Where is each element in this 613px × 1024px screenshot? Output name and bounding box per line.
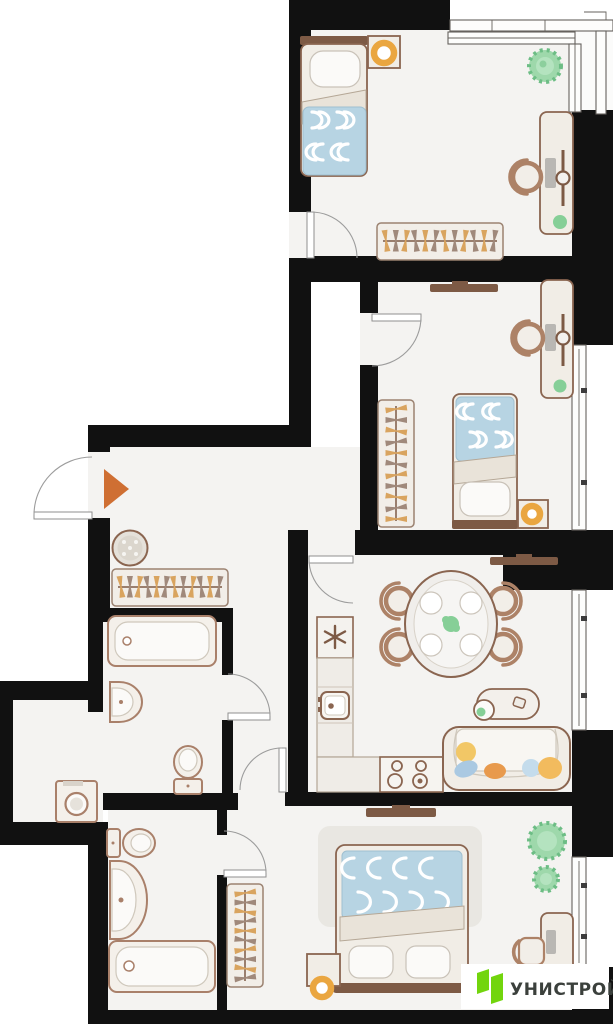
nightstand-lamp (368, 36, 400, 68)
sofa (443, 727, 570, 790)
pouf (113, 531, 148, 566)
coffee-table (474, 689, 539, 720)
plant-icon (529, 823, 565, 859)
logo-text: УНИСТРОЙ (510, 978, 613, 1000)
pillow (406, 946, 450, 978)
pillow (460, 482, 510, 516)
toilet (107, 829, 155, 857)
lamp-icon (374, 43, 394, 63)
wardrobe (378, 400, 414, 527)
toilet (174, 746, 202, 794)
plate (420, 592, 442, 614)
door-entrance (34, 457, 92, 519)
fridge (317, 617, 353, 658)
pillow (310, 51, 360, 87)
desk-chair (512, 321, 543, 355)
lamp-icon (524, 506, 540, 522)
keyboard-icon (545, 158, 556, 188)
plant-icon (529, 50, 561, 82)
desk (540, 112, 573, 234)
nightstand-lamp (518, 500, 548, 528)
balcony-glazing-top (450, 20, 613, 31)
counter-stove (317, 757, 443, 792)
plate (460, 592, 482, 614)
balcony-glazing-right (596, 31, 606, 114)
pillow (456, 742, 476, 762)
pillow (349, 946, 393, 978)
desk-chair (510, 160, 541, 194)
bathtub (109, 941, 215, 992)
floor-plan-canvas: УНИСТРОЙ (0, 0, 613, 1024)
desk-chair (514, 938, 544, 965)
wardrobe (227, 884, 263, 987)
counter-sink (317, 658, 353, 757)
bathtub (108, 616, 216, 666)
floor-plan: УНИСТРОЙ (0, 0, 613, 1024)
plant-icon (534, 867, 558, 891)
desk (541, 280, 573, 398)
pillow (538, 757, 562, 779)
bed-single (452, 394, 518, 529)
keyboard-icon (545, 324, 556, 351)
faucet-icon (328, 703, 334, 709)
pillow (522, 759, 540, 777)
wardrobe (112, 569, 228, 606)
bed-single (300, 36, 368, 176)
lamp-icon (313, 979, 331, 997)
bed-double (333, 845, 471, 993)
wardrobe (377, 223, 503, 260)
plate (460, 634, 482, 656)
plate (420, 634, 442, 656)
brand-logo: УНИСТРОЙ (461, 964, 613, 1009)
pillow (484, 763, 506, 779)
washing-machine (56, 781, 97, 822)
